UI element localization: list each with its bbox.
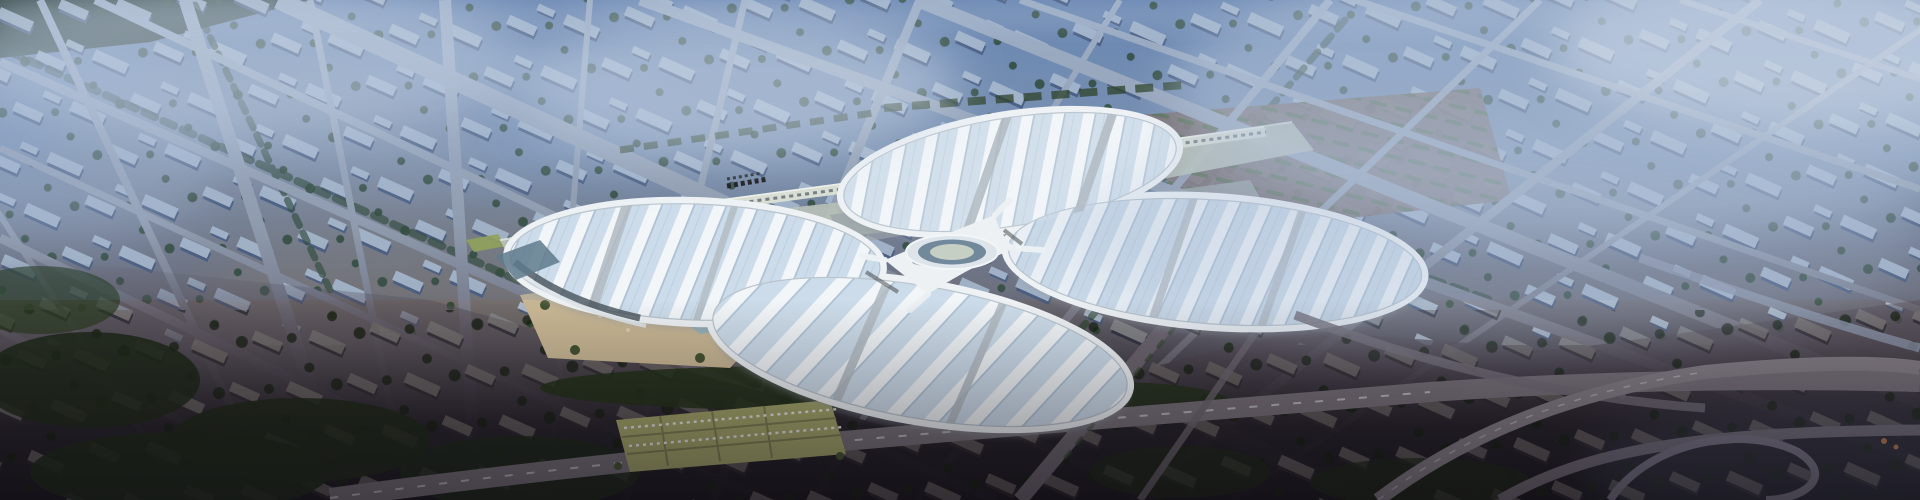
bottom-vignette	[0, 300, 1920, 500]
arm-whisker	[1015, 248, 1042, 250]
hub-courtyard	[930, 244, 974, 260]
aerial-rendering	[0, 0, 1920, 500]
arm-whisker	[862, 256, 885, 260]
top-haze-band	[0, 0, 1920, 30]
hero-banner	[0, 0, 1920, 500]
fog-patch	[170, 50, 690, 190]
